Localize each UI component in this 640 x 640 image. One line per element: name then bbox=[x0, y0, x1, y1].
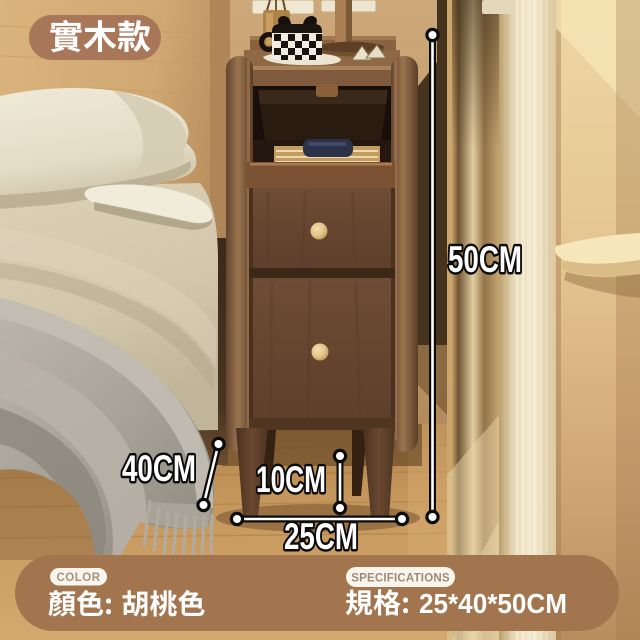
svg-text:40CM: 40CM bbox=[122, 448, 196, 489]
svg-text:COLOR: COLOR bbox=[56, 572, 100, 584]
svg-text:25CM: 25CM bbox=[284, 516, 358, 557]
svg-text:25*40*50CM: 25*40*50CM bbox=[419, 588, 567, 619]
svg-text:SPECIFICATIONS: SPECIFICATIONS bbox=[351, 573, 450, 585]
svg-text:10CM: 10CM bbox=[256, 459, 326, 500]
svg-text:50CM: 50CM bbox=[448, 239, 522, 280]
